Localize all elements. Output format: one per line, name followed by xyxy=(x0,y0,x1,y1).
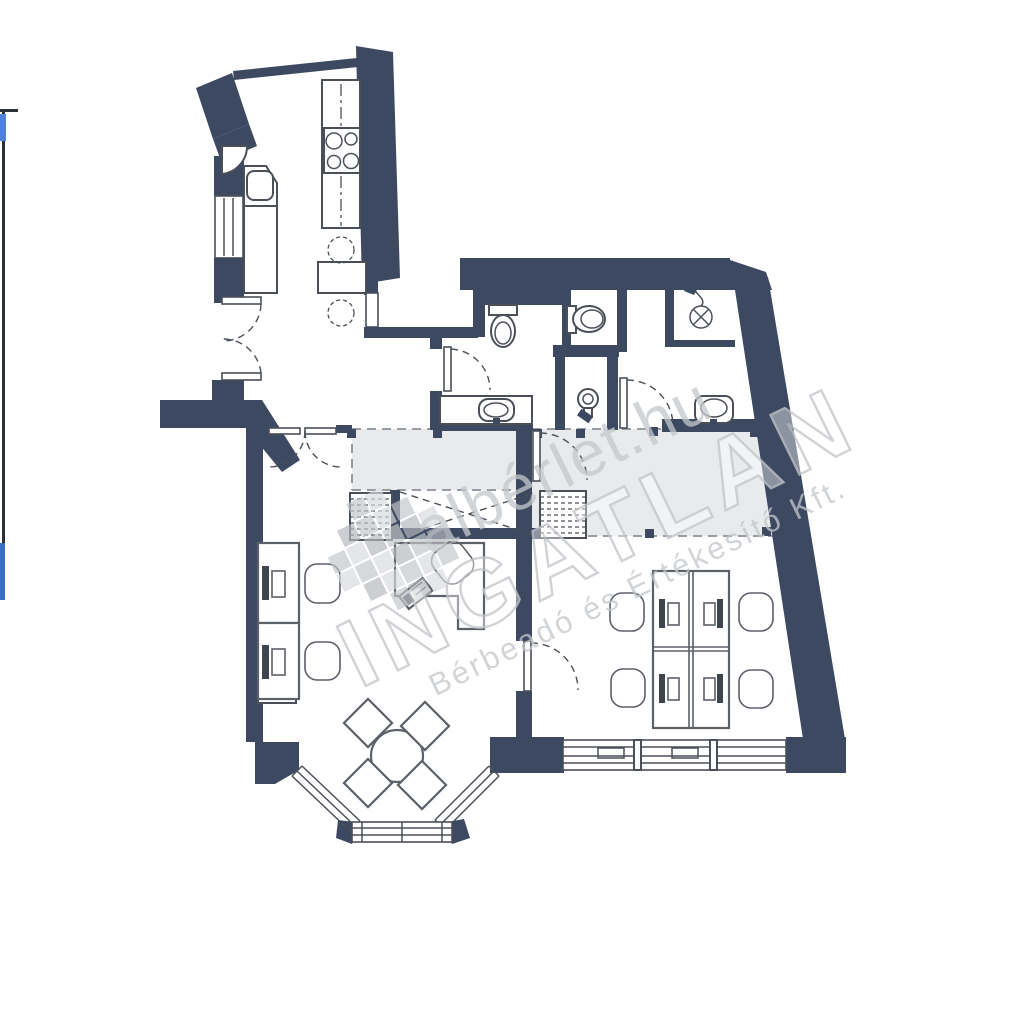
wall-west-block xyxy=(160,400,246,428)
kitchen-table xyxy=(318,262,366,293)
bay-dining xyxy=(344,699,449,809)
monitor xyxy=(659,674,665,703)
counter-left xyxy=(244,206,277,293)
screen-edge-artifacts xyxy=(0,109,18,600)
office-chair xyxy=(305,642,340,680)
monitor xyxy=(262,645,269,679)
floor-plan-page: albérlet.hu INGATLAN Bérbeadó és Értékes… xyxy=(0,0,1024,1017)
office-chair xyxy=(739,593,773,631)
bay-window-right xyxy=(435,766,499,830)
monitor xyxy=(717,674,723,703)
bay-corner-right xyxy=(490,737,564,773)
floor-plan-drawing: albérlet.hu INGATLAN Bérbeadó és Értékes… xyxy=(0,0,1024,1017)
hall-glazing xyxy=(366,293,378,327)
entry-french-door xyxy=(223,304,261,341)
monitor xyxy=(262,566,269,600)
kitchen-north-wall xyxy=(233,58,358,80)
monitor xyxy=(717,599,723,628)
pedestal-basin xyxy=(578,389,598,409)
bay-corner-left xyxy=(255,742,299,784)
edge-blue-top xyxy=(0,114,6,141)
bathroom1-door xyxy=(451,349,490,390)
edge-blue-bottom xyxy=(0,543,5,600)
monitor xyxy=(659,599,665,628)
toilet-1 xyxy=(489,305,517,315)
shower-partition xyxy=(665,290,674,345)
office-chair xyxy=(739,670,773,708)
office-chair xyxy=(611,669,645,707)
kitchen-east-wall xyxy=(356,46,400,284)
hallway-north-wall xyxy=(364,327,478,338)
south-window-band xyxy=(563,740,786,770)
kitchen-chair xyxy=(328,237,354,263)
kitchen-window xyxy=(215,196,243,258)
desk-cluster xyxy=(653,571,729,728)
kitchen-chair xyxy=(328,300,354,326)
